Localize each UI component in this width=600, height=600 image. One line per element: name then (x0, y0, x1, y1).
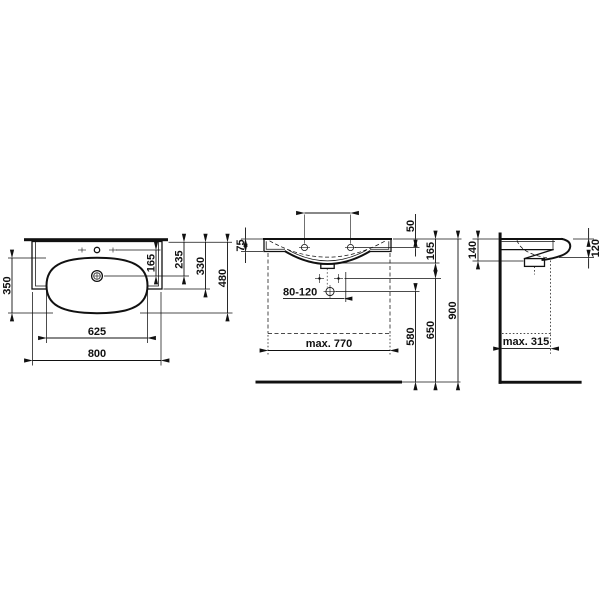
dim-plan-back-to-drain: 235 (174, 250, 186, 268)
dim-plan-back-to-front-edge: 330 (195, 257, 207, 275)
dim-valves-height: 650 (425, 321, 437, 339)
dim-plan-bowl-depth: 350 (2, 276, 14, 294)
dim-plan-overall-depth: 480 (217, 269, 229, 287)
dim-trap-offset-range: 80-120 (283, 286, 317, 298)
floor-line-side (499, 381, 582, 384)
dim-trap-outlet-height: 580 (405, 327, 417, 345)
basin-bowl (47, 258, 148, 313)
technical-drawing: 350 165 235 330 480 625 800 (0, 0, 600, 600)
dim-front-edge-height: 75 (235, 239, 247, 251)
dim-furniture-max-depth: max. 315 (503, 336, 549, 348)
dim-plan-tap-to-drain: 165 (146, 254, 158, 272)
dim-ceramic-height: 165 (425, 242, 437, 260)
dim-rim-height: 900 (447, 301, 459, 319)
dim-plan-bowl-width: 625 (88, 326, 106, 338)
dim-rim-to-fixing-holes: 50 (405, 220, 417, 232)
dim-front-edge-height-side: 120 (590, 239, 600, 257)
dim-plan-overall-width: 800 (88, 348, 106, 360)
wall-line-side (499, 233, 502, 384)
floor-line-front (256, 381, 403, 384)
wall-bar (24, 238, 168, 241)
dim-furniture-max-width: max. 770 (306, 338, 352, 350)
dim-rear-ceramic-height: 140 (467, 241, 479, 259)
